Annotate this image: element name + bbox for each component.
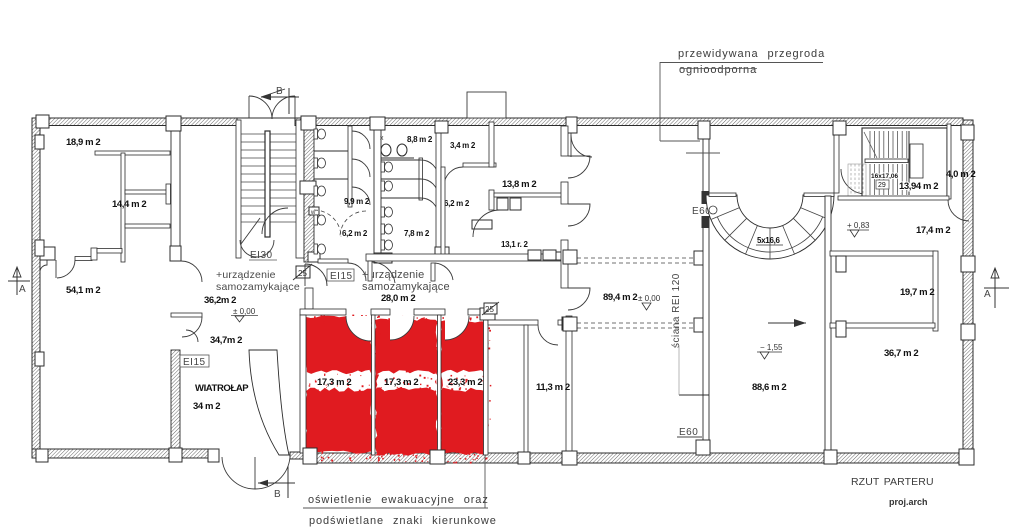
svg-text:18,9 m 2: 18,9 m 2 (66, 137, 100, 148)
svg-text:17,4 m 2: 17,4 m 2 (916, 225, 950, 236)
svg-text:RZUT PARTERU: RZUT PARTERU (851, 476, 934, 488)
svg-text:± 0,00: ± 0,00 (638, 294, 661, 303)
svg-text:14,4 m 2: 14,4 m 2 (112, 199, 146, 210)
svg-text:13,1 r. 2: 13,1 r. 2 (501, 240, 529, 249)
svg-text:A: A (984, 289, 991, 300)
svg-text:A: A (19, 284, 26, 295)
svg-text:34,7m 2: 34,7m 2 (210, 335, 242, 346)
svg-text:88,6 m 2: 88,6 m 2 (752, 382, 786, 393)
svg-text:samozamykające: samozamykające (216, 281, 300, 293)
svg-text:+urządzenie: +urządzenie (216, 269, 276, 281)
svg-text:+ 0,83: + 0,83 (847, 221, 870, 230)
svg-text:25: 25 (485, 305, 494, 314)
svg-text:36,7 m 2: 36,7 m 2 (884, 348, 918, 359)
svg-text:B: B (276, 86, 283, 97)
svg-text:B: B (274, 489, 281, 500)
svg-text:proj.arch: proj.arch (889, 497, 928, 507)
svg-text:4,0 m 2: 4,0 m 2 (946, 169, 976, 180)
svg-text:3,4 m 2: 3,4 m 2 (450, 141, 476, 150)
svg-text:EI15: EI15 (330, 271, 353, 282)
svg-text:7,8 m 2: 7,8 m 2 (404, 229, 430, 238)
svg-text:ściana REI 120: ściana REI 120 (671, 273, 682, 348)
svg-text:EI15: EI15 (183, 357, 206, 368)
svg-text:25: 25 (298, 269, 307, 278)
svg-text:E60: E60 (679, 427, 698, 438)
svg-text:19,7 m 2: 19,7 m 2 (900, 287, 934, 298)
svg-text:9,9 m 2: 9,9 m 2 (344, 197, 370, 206)
svg-text:samozamykające: samozamykające (362, 281, 450, 293)
svg-text:34 m 2: 34 m 2 (193, 401, 220, 412)
svg-text:6,2 m 2: 6,2 m 2 (444, 199, 470, 208)
svg-text:54,1 m 2: 54,1 m 2 (66, 285, 100, 296)
svg-text:36,2m 2: 36,2m 2 (204, 295, 236, 306)
svg-text:6,2 m 2: 6,2 m 2 (342, 229, 368, 238)
svg-text:17,3 m 2: 17,3 m 2 (317, 377, 351, 388)
svg-text:5x16,6: 5x16,6 (757, 236, 781, 245)
svg-text:17,3 m 2: 17,3 m 2 (384, 377, 418, 388)
svg-text:podświetlane znaki kierunkowe: podświetlane znaki kierunkowe (309, 515, 497, 527)
svg-text:13,8 m 2: 13,8 m 2 (502, 179, 536, 190)
svg-text:29: 29 (878, 182, 886, 189)
svg-text:przewidywana przegroda: przewidywana przegroda (678, 48, 825, 60)
svg-text:23,3 m 2: 23,3 m 2 (448, 377, 482, 388)
svg-text:x: x (380, 135, 384, 142)
svg-text:28,0 m 2: 28,0 m 2 (381, 293, 415, 304)
svg-text:8,8 m 2: 8,8 m 2 (407, 135, 433, 144)
svg-text:89,4 m 2: 89,4 m 2 (603, 292, 637, 303)
svg-text:oświetlenie ewakuacyjne oraz: oświetlenie ewakuacyjne oraz (308, 494, 489, 506)
svg-text:13,94 m 2: 13,94 m 2 (899, 181, 938, 192)
svg-text:− 1,55: − 1,55 (760, 343, 783, 352)
svg-text:11,3 m 2: 11,3 m 2 (536, 382, 570, 393)
svg-text:EI30: EI30 (250, 250, 273, 261)
svg-text:ognioodporna: ognioodporna (679, 64, 757, 76)
svg-text:16x17,06: 16x17,06 (871, 173, 898, 180)
svg-text:± 0,00: ± 0,00 (233, 307, 256, 316)
svg-text:WIATROŁAP: WIATROŁAP (195, 383, 249, 394)
